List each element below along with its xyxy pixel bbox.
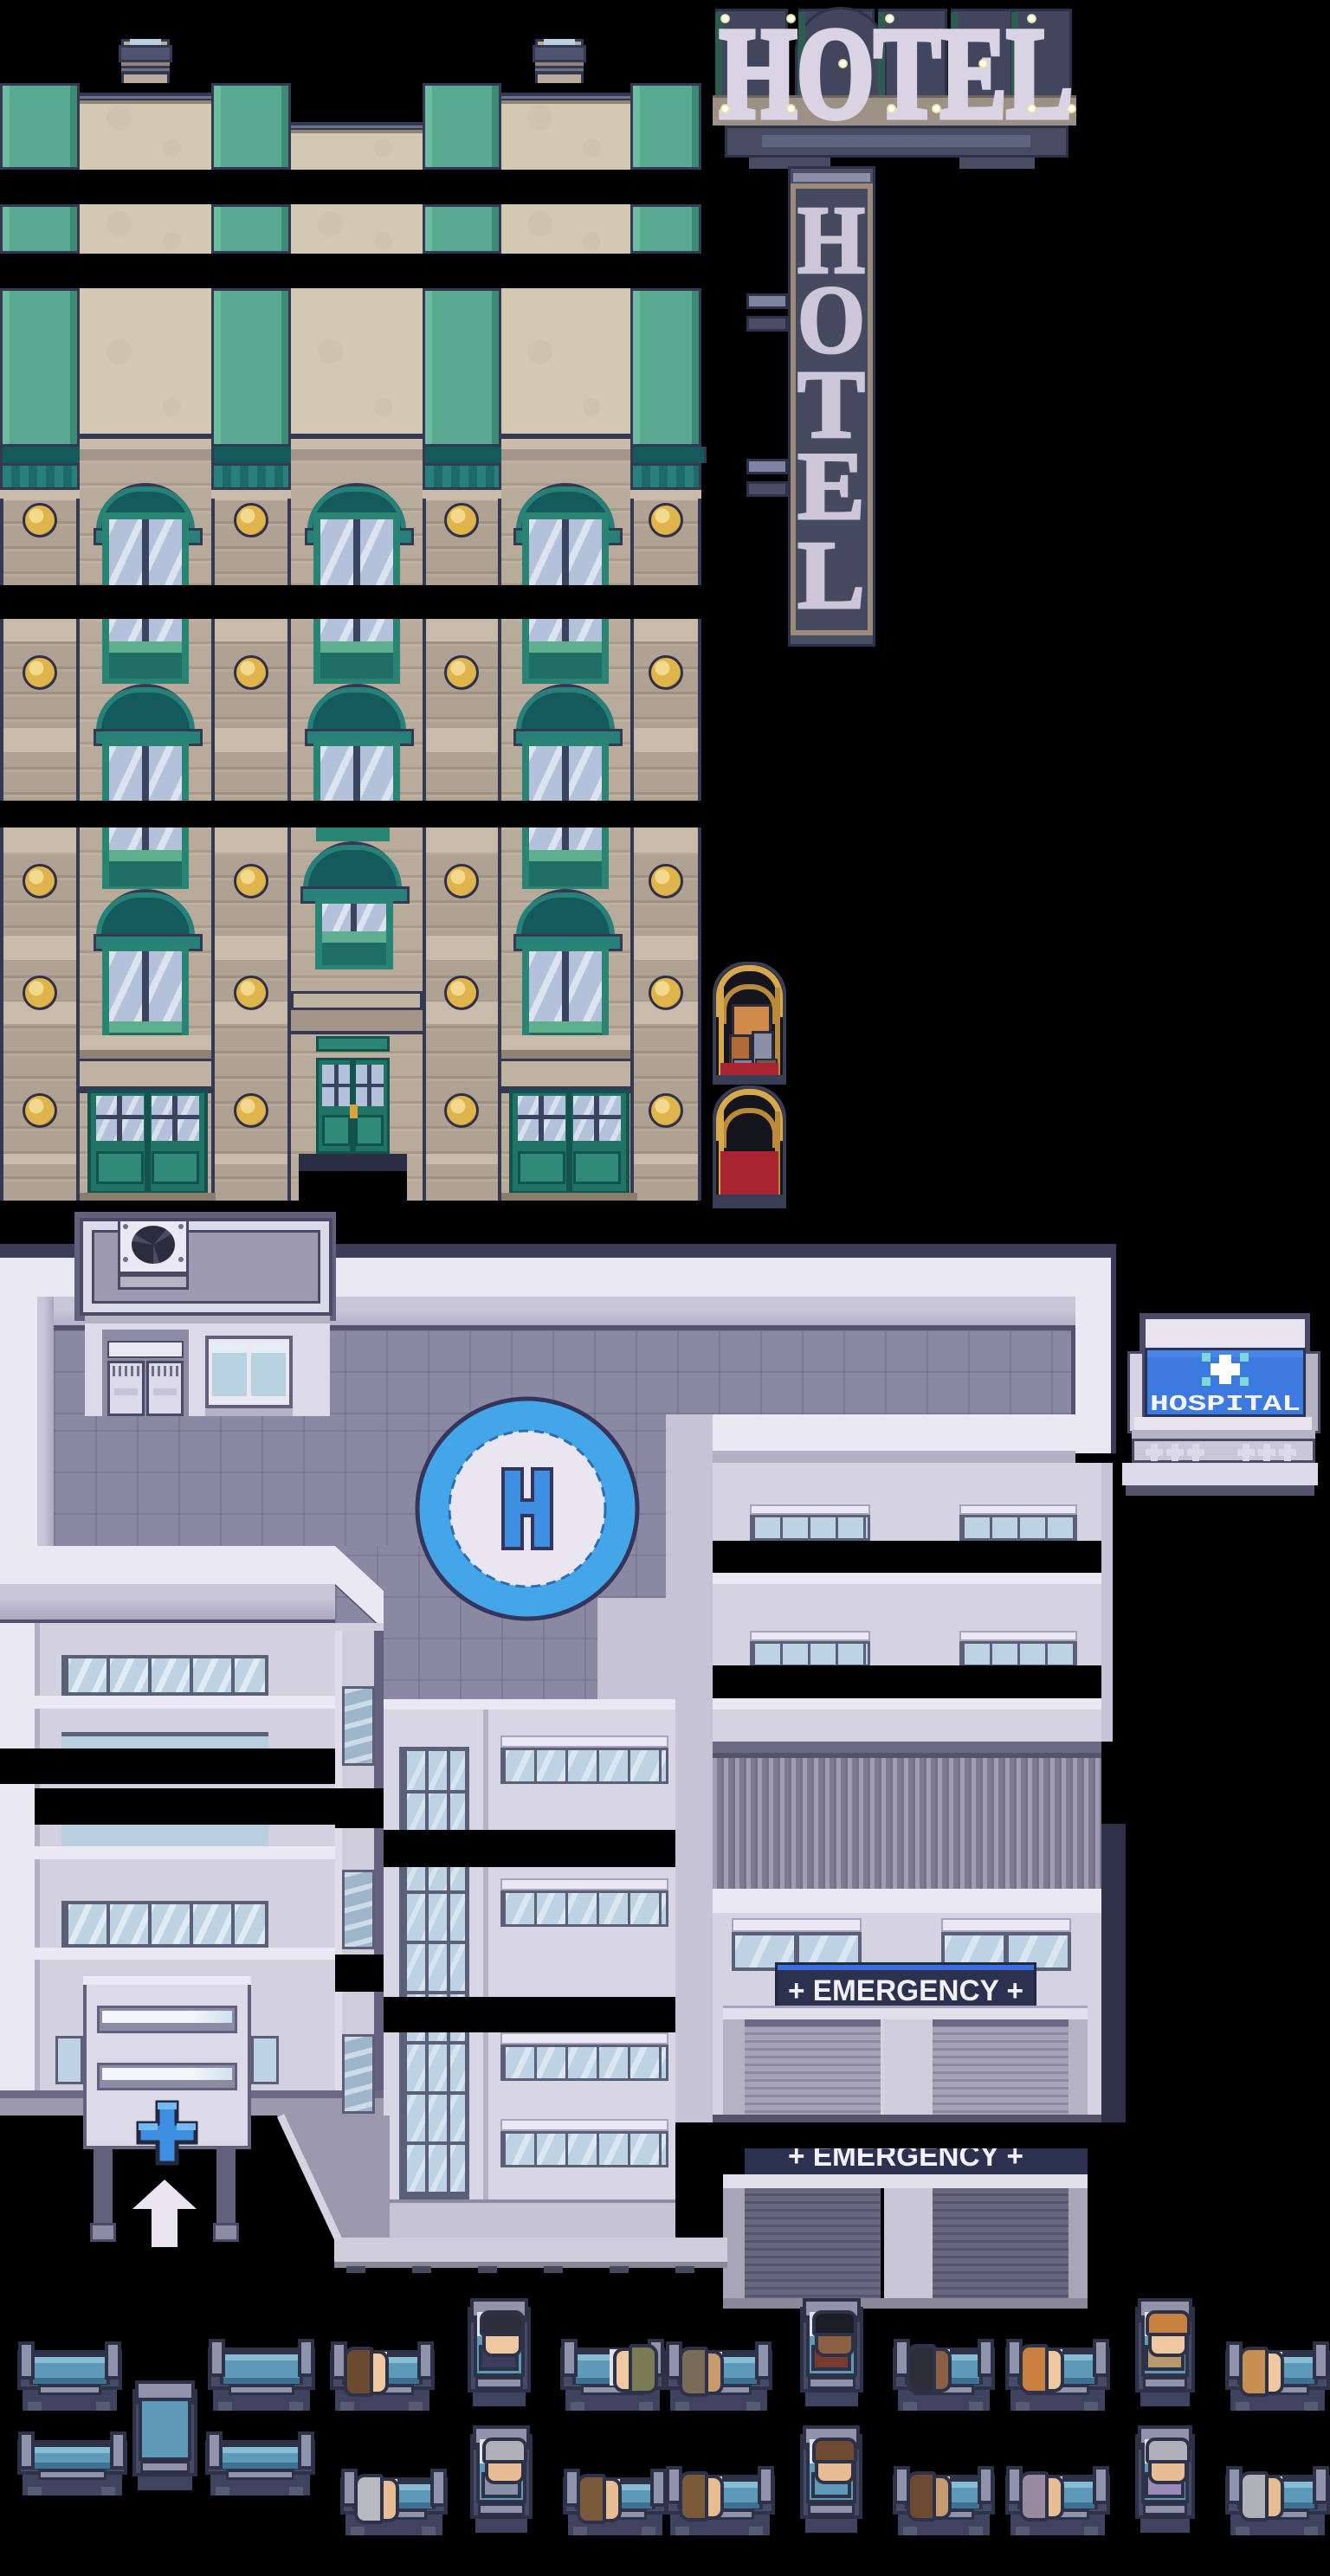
svg-text:HOTEL: HOTEL — [720, 2, 1073, 138]
svg-text:L: L — [797, 522, 865, 629]
svg-text:+ EMERGENCY +: + EMERGENCY + — [788, 2148, 1023, 2173]
svg-text:+ EMERGENCY +: + EMERGENCY + — [788, 1974, 1023, 2007]
svg-text:HOSPITAL: HOSPITAL — [1150, 1391, 1301, 1417]
